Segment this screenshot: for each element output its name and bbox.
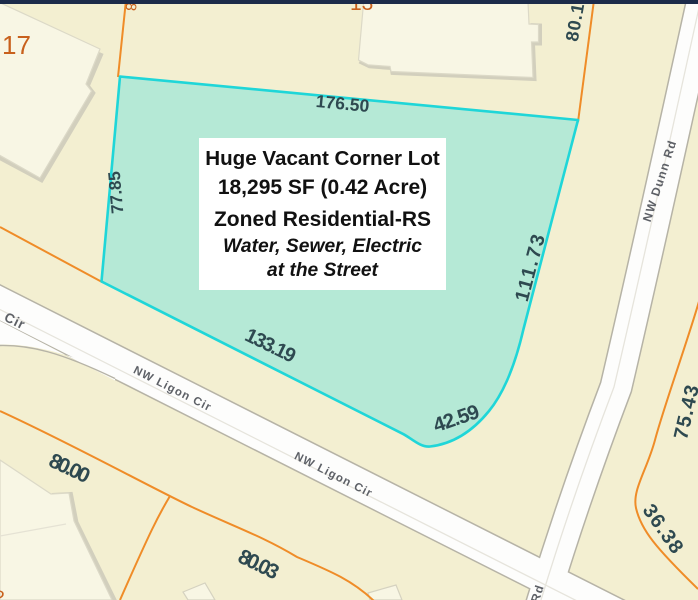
svg-text:17: 17 [2,30,31,60]
svg-text:Huge Vacant Corner Lot: Huge Vacant Corner Lot [205,147,440,170]
svg-text:77.85: 77.85 [105,170,128,214]
svg-text:at the Street: at the Street [267,260,380,281]
svg-text:18,295 SF (0.42 Acre): 18,295 SF (0.42 Acre) [218,176,427,199]
svg-text:Zoned Residential-RS: Zoned Residential-RS [214,208,431,231]
svg-text:Water, Sewer, Electric: Water, Sewer, Electric [223,236,422,257]
